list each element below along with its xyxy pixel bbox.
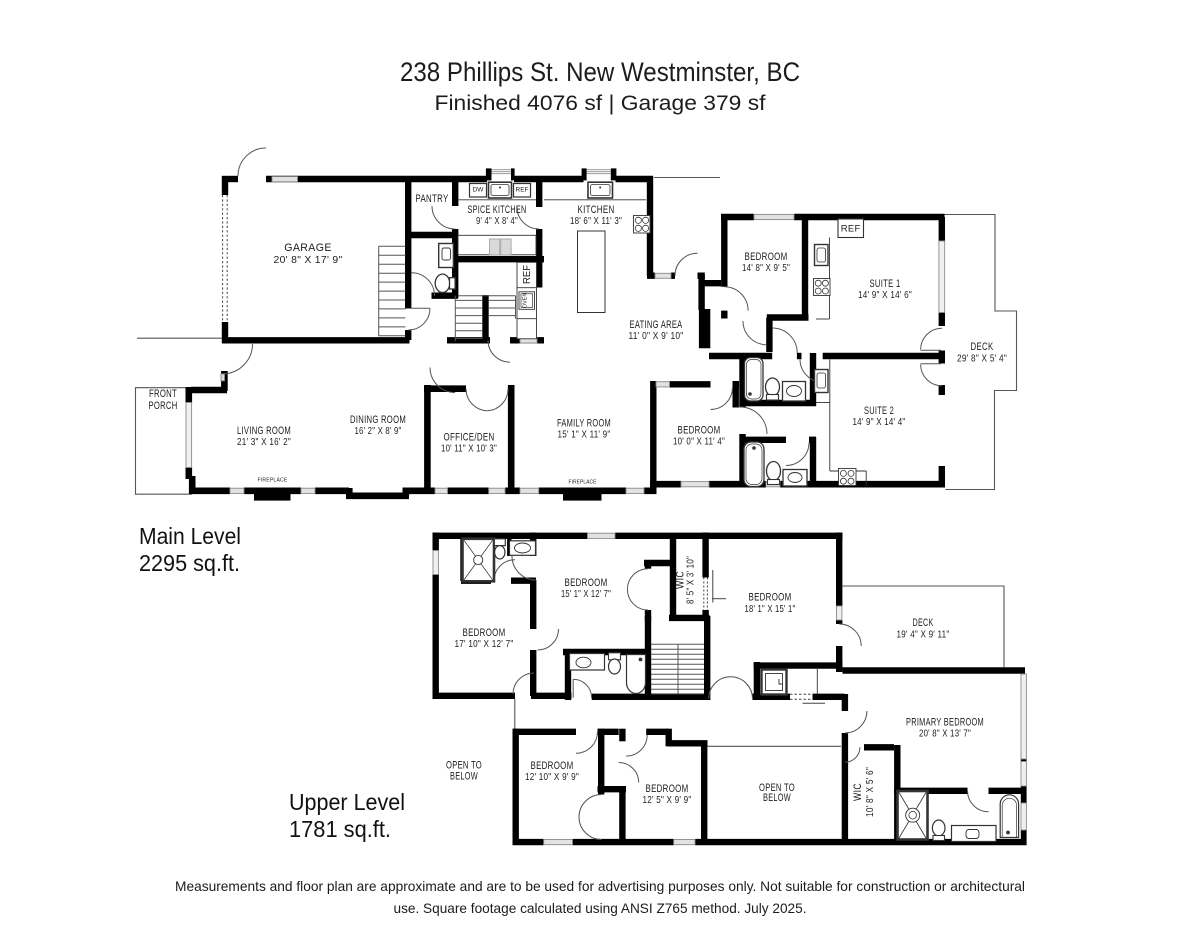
svg-text:PRIMARY BEDROOM: PRIMARY BEDROOM	[906, 717, 984, 729]
svg-text:BEDROOM: BEDROOM	[565, 577, 608, 589]
svg-text:20' 8" X 13' 7": 20' 8" X 13' 7"	[919, 729, 971, 740]
svg-text:Finished 4076 sf | Garage: Finished 4076 sf | Garage 379 sf	[435, 92, 766, 115]
svg-text:20' 8" X 17' 9": 20' 8" X 17' 9"	[274, 255, 343, 266]
svg-text:8' 5" X 3' 10": 8' 5" X 3' 10"	[686, 556, 697, 604]
svg-text:18' 6" X 11' 3": 18' 6" X 11' 3"	[570, 216, 622, 227]
svg-text:10' 0" X 11' 4": 10' 0" X 11' 4"	[673, 437, 725, 448]
svg-text:BEDROOM: BEDROOM	[646, 783, 689, 795]
svg-text:EATING AREA: EATING AREA	[630, 319, 683, 331]
svg-text:SPICE KITCHEN: SPICE KITCHEN	[468, 204, 527, 216]
svg-text:OFFICE/DEN: OFFICE/DEN	[444, 432, 495, 444]
svg-text:BEDROOM: BEDROOM	[749, 592, 792, 604]
svg-text:Measurements and floor plan ar: Measurements and floor plan are approxim…	[175, 879, 1025, 894]
svg-text:17' 10" X 12' 7": 17' 10" X 12' 7"	[455, 639, 514, 650]
svg-text:DW: DW	[473, 187, 485, 194]
svg-text:19' 4" X 9' 11": 19' 4" X 9' 11"	[897, 630, 950, 641]
svg-text:GARAGE: GARAGE	[284, 242, 332, 254]
svg-text:12' 5" X 9' 9": 12' 5" X 9' 9"	[643, 795, 692, 806]
svg-text:FIREPLACE: FIREPLACE	[569, 480, 597, 486]
svg-text:LIVING ROOM: LIVING ROOM	[237, 425, 291, 437]
svg-text:BELOW: BELOW	[763, 792, 791, 804]
svg-text:10' 8" X 5' 6": 10' 8" X 5' 6"	[865, 767, 876, 817]
svg-text:29' 8" X 5' 4": 29' 8" X 5' 4"	[957, 354, 1007, 365]
svg-text:FRONT: FRONT	[149, 388, 177, 400]
svg-text:BEDROOM: BEDROOM	[745, 251, 788, 263]
svg-text:REF: REF	[841, 224, 861, 235]
svg-text:2295 sq.ft.: 2295 sq.ft.	[139, 550, 240, 576]
svg-text:14' 8" X 9' 5": 14' 8" X 9' 5"	[742, 263, 790, 274]
svg-text:FIREPLACE: FIREPLACE	[258, 478, 288, 484]
svg-text:PORCH: PORCH	[149, 400, 178, 412]
svg-text:DECK: DECK	[971, 341, 994, 353]
svg-text:Upper Level: Upper Level	[289, 789, 405, 815]
svg-text:SUITE 1: SUITE 1	[870, 278, 901, 290]
svg-text:11' 0" X 9' 10": 11' 0" X 9' 10"	[629, 331, 684, 342]
svg-text:DINING ROOM: DINING ROOM	[350, 414, 406, 426]
svg-text:21' 3" X 16' 2": 21' 3" X 16' 2"	[237, 437, 291, 448]
svg-text:PANTRY: PANTRY	[416, 193, 449, 205]
svg-text:15' 1" X 12' 7": 15' 1" X 12' 7"	[561, 589, 611, 600]
svg-text:OVEN: OVEN	[523, 293, 529, 309]
svg-text:1781 sq.ft.: 1781 sq.ft.	[289, 816, 391, 842]
svg-text:BELOW: BELOW	[450, 771, 478, 783]
svg-text:15' 1" X 11' 9": 15' 1" X 11' 9"	[558, 430, 611, 441]
svg-text:SUITE 2: SUITE 2	[864, 405, 894, 417]
svg-text:BEDROOM: BEDROOM	[531, 760, 574, 772]
svg-text:14' 9" X 14' 6": 14' 9" X 14' 6"	[858, 290, 912, 301]
svg-text:REF: REF	[516, 187, 529, 194]
svg-text:DECK: DECK	[913, 617, 934, 629]
svg-text:9' 4" X 8' 4": 9' 4" X 8' 4"	[476, 216, 518, 227]
svg-text:use. Square footage calculated: use. Square footage calculated using ANS…	[394, 901, 807, 916]
svg-text:18' 1" X 15' 1": 18' 1" X 15' 1"	[745, 604, 796, 615]
svg-text:BEDROOM: BEDROOM	[463, 627, 506, 639]
svg-text:Main Level: Main Level	[139, 523, 241, 549]
svg-text:16' 2" X 8' 9": 16' 2" X 8' 9"	[355, 426, 402, 437]
svg-text:14' 9" X 14' 4": 14' 9" X 14' 4"	[853, 417, 906, 428]
svg-text:FAMILY ROOM: FAMILY ROOM	[557, 418, 611, 430]
svg-text:KITCHEN: KITCHEN	[578, 204, 615, 216]
svg-text:REF: REF	[521, 265, 533, 284]
svg-text:10' 11" X 10' 3": 10' 11" X 10' 3"	[441, 444, 497, 455]
svg-text:WIC: WIC	[852, 783, 864, 801]
svg-text:BEDROOM: BEDROOM	[678, 425, 721, 437]
svg-text:12' 10" X 9' 9": 12' 10" X 9' 9"	[525, 772, 579, 783]
svg-text:238 Phillips St. New Westminst: 238 Phillips St. New Westminster, BC	[400, 57, 800, 87]
